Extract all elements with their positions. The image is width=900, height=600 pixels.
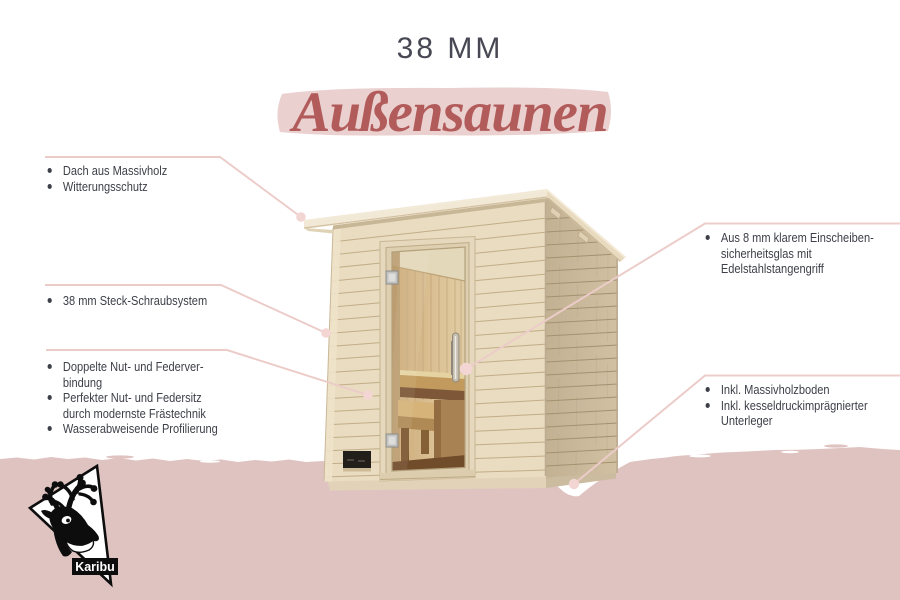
svg-text:Karibu: Karibu (75, 560, 115, 574)
